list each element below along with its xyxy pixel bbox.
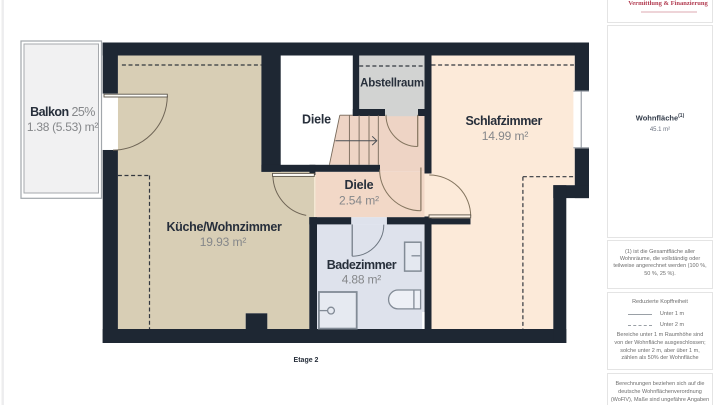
svg-text:Balkon 25%: Balkon 25% (30, 105, 95, 119)
svg-text:4.88 m²: 4.88 m² (342, 273, 381, 287)
svg-text:19.93 m²: 19.93 m² (200, 235, 247, 249)
svg-text:Abstellraum: Abstellraum (360, 78, 424, 90)
svg-text:Diele: Diele (302, 113, 331, 127)
svg-text:Küche/Wohnzimmer: Küche/Wohnzimmer (166, 220, 282, 234)
svg-text:14.99 m²: 14.99 m² (482, 129, 529, 143)
svg-text:1.38 (5.53) m²: 1.38 (5.53) m² (27, 120, 98, 134)
svg-text:Etage 2: Etage 2 (294, 357, 319, 364)
svg-text:Diele: Diele (345, 178, 374, 192)
svg-text:Schlafzimmer: Schlafzimmer (465, 114, 542, 128)
svg-text:Badezimmer: Badezimmer (327, 258, 397, 272)
svg-text:2.54 m²: 2.54 m² (339, 194, 379, 208)
